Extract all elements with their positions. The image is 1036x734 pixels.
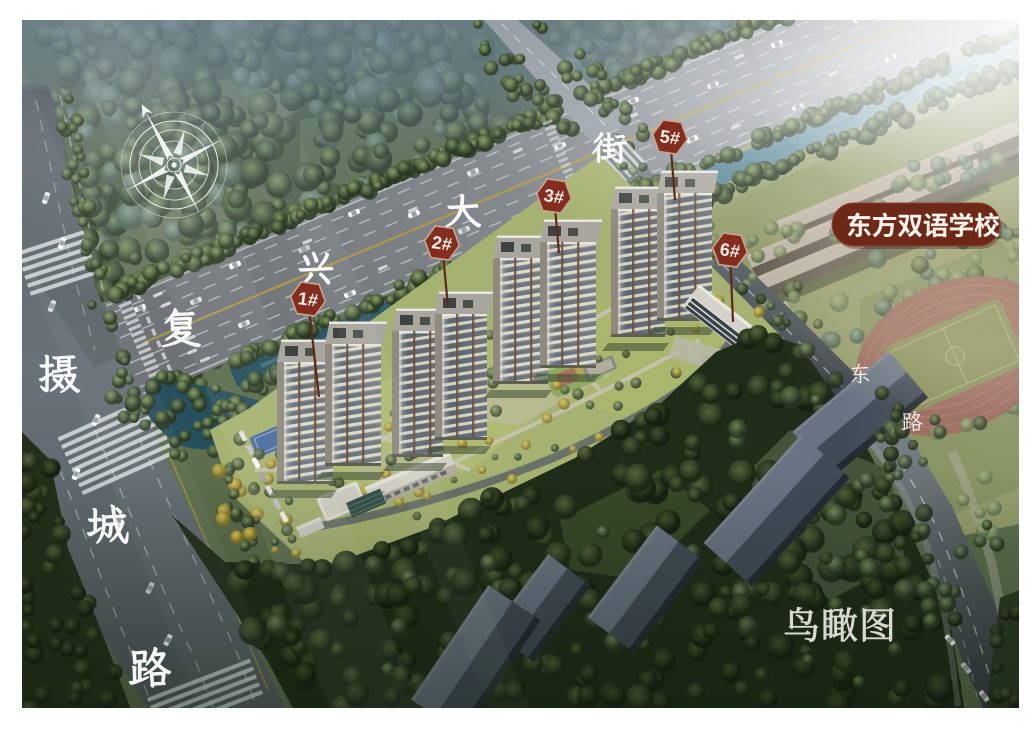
svg-text:5#: 5# (659, 126, 682, 149)
svg-text:2#: 2# (431, 232, 454, 255)
svg-text:6#: 6# (719, 239, 742, 262)
svg-text:3#: 3# (543, 185, 566, 208)
svg-text:1#: 1# (297, 288, 320, 311)
